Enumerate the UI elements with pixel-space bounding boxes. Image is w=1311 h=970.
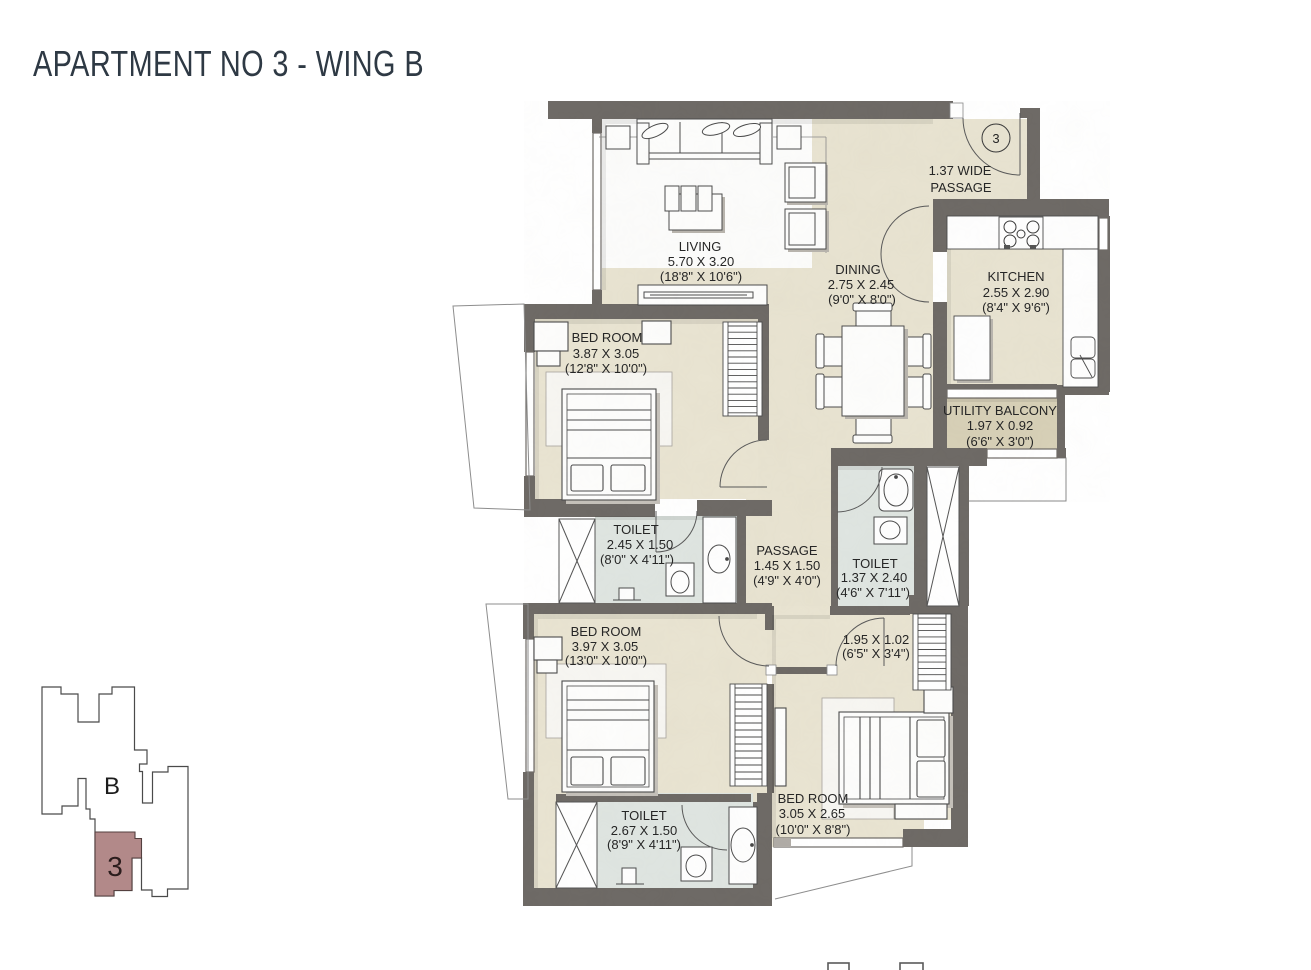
svg-text:(4'6" X 7'11"): (4'6" X 7'11") [836,585,910,600]
svg-text:PASSAGE: PASSAGE [756,543,818,558]
svg-text:(8'4" X 9'6"): (8'4" X 9'6") [982,300,1050,315]
svg-text:(12'8" X 10'0"): (12'8" X 10'0") [565,361,647,376]
svg-text:(9'0" X 8'0"): (9'0" X 8'0") [828,292,896,307]
svg-text:DINING: DINING [835,262,881,277]
svg-text:(18'8" X 10'6"): (18'8" X 10'6") [660,269,742,284]
svg-text:KITCHEN: KITCHEN [987,269,1044,284]
svg-text:(6'5" X 3'4"): (6'5" X 3'4") [842,646,910,661]
svg-text:TOILET: TOILET [613,522,658,537]
svg-text:3.97 X 3.05: 3.97 X 3.05 [572,639,639,654]
svg-text:(10'0" X 8'8"): (10'0" X 8'8") [776,822,851,837]
svg-text:TOILET: TOILET [621,808,666,823]
svg-text:3: 3 [992,131,999,146]
svg-text:LIVING: LIVING [679,239,722,254]
svg-text:B: B [104,773,120,800]
svg-text:1.45 X 1.50: 1.45 X 1.50 [754,558,821,573]
svg-text:(8'0" X 4'11"): (8'0" X 4'11") [600,552,674,567]
svg-text:TOILET: TOILET [852,556,897,571]
svg-text:BED ROOM: BED ROOM [571,624,642,639]
svg-text:(4'9" X 4'0"): (4'9" X 4'0") [753,573,821,588]
svg-text:(13'0" X 10'0"): (13'0" X 10'0") [565,653,647,668]
svg-text:UTILITY BALCONY: UTILITY BALCONY [943,403,1057,418]
svg-text:1.97 X 0.92: 1.97 X 0.92 [967,418,1034,433]
svg-text:3: 3 [107,851,123,882]
svg-text:2.75 X 2.45: 2.75 X 2.45 [828,277,895,292]
svg-text:BED ROOM: BED ROOM [572,330,643,345]
svg-text:3.87 X 3.05: 3.87 X 3.05 [573,346,640,361]
svg-text:(6'6" X 3'0"): (6'6" X 3'0") [966,434,1034,449]
svg-text:5.70 X 3.20: 5.70 X 3.20 [668,254,735,269]
svg-text:1.95 X 1.02: 1.95 X 1.02 [843,632,910,647]
svg-text:BED ROOM: BED ROOM [778,791,849,806]
svg-text:2.45 X 1.50: 2.45 X 1.50 [607,537,674,552]
svg-text:PASSAGE: PASSAGE [930,180,992,195]
svg-text:1.37 X 2.40: 1.37 X 2.40 [841,570,908,585]
svg-text:2.55 X 2.90: 2.55 X 2.90 [983,285,1050,300]
svg-text:3.05 X 2.65: 3.05 X 2.65 [779,806,846,821]
svg-text:APARTMENT NO 3 - WING B: APARTMENT NO 3 - WING B [33,43,424,84]
svg-text:1.37 WIDE: 1.37 WIDE [929,163,992,178]
svg-text:(8'9" X 4'11"): (8'9" X 4'11") [607,837,681,852]
svg-text:2.67 X 1.50: 2.67 X 1.50 [611,823,678,838]
